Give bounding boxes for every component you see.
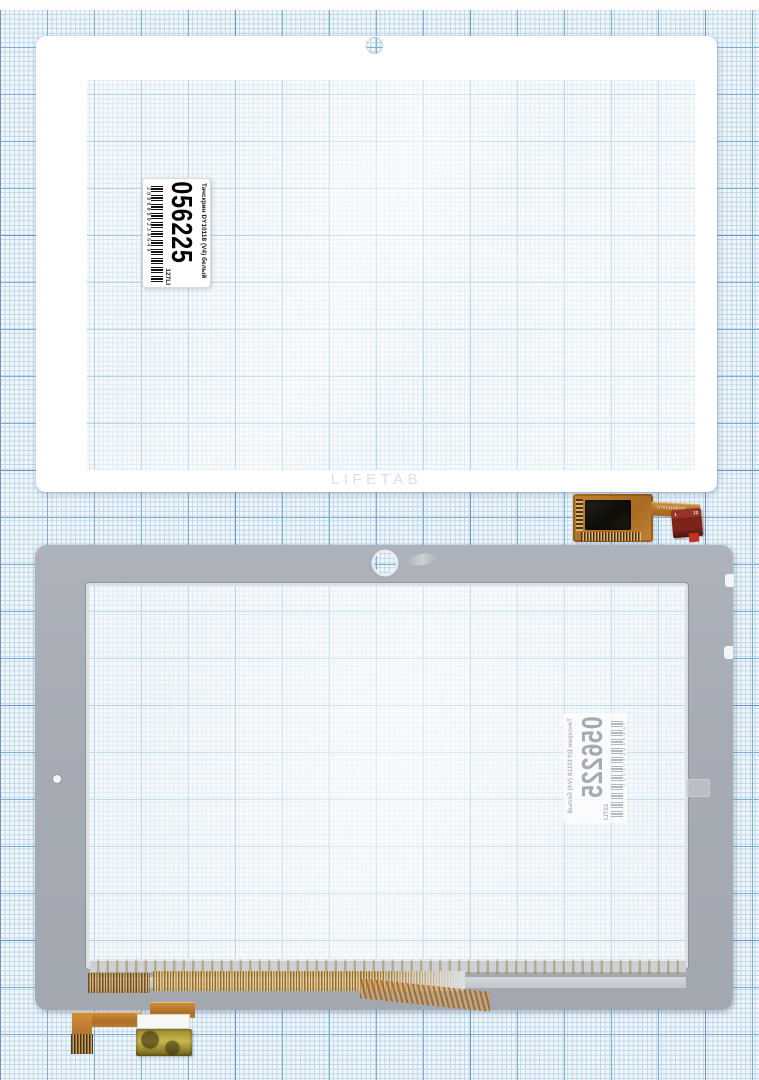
barcode-digits: 2000000234649 xyxy=(623,714,627,822)
label-big-number: 056225 xyxy=(577,714,610,800)
touch-controller-chip xyxy=(585,500,631,530)
label-number-row: 056225 127LI xyxy=(577,714,610,822)
barcode-bars xyxy=(151,186,163,282)
camera-hole-back xyxy=(374,552,396,574)
brand-logo-text: LIFETAB xyxy=(331,471,422,488)
barcode-digits: 2000000234649 xyxy=(144,179,151,287)
connector-red-tab xyxy=(689,533,700,543)
barcode-bars xyxy=(611,721,623,817)
edge-notch xyxy=(725,574,734,587)
flex-trace-bars xyxy=(576,499,583,531)
edge-notch xyxy=(724,646,733,659)
digitizer-front-view: LIFETAB Тачскрин DY10118 (V4) белый 0562… xyxy=(36,36,717,492)
surface-scuff-mark xyxy=(406,552,437,567)
barcode-label-card-mirrored: Тачскрин DY10118 (V4) белый 056225 127LI… xyxy=(563,713,627,823)
label-big-number: 056225 xyxy=(164,179,197,265)
mounting-hole xyxy=(53,775,61,783)
barcode-label-card: Тачскрин DY10118 (V4) белый 056225 127LI… xyxy=(142,178,211,288)
digitizer-back-view: Тачскрин DY10118 (V4) белый 056225 127LI… xyxy=(35,545,733,1010)
graph-paper-background: LIFETAB Тачскрин DY10118 (V4) белый 0562… xyxy=(0,0,759,1080)
label-suffix-code: 127LI xyxy=(164,268,171,285)
label-product-title: Тачскрин DY10118 (V4) белый xyxy=(197,179,210,287)
pin-label-last: 12 xyxy=(693,510,698,515)
pin-label-first: 1 xyxy=(674,512,677,517)
flex-contact-comb xyxy=(581,532,641,541)
back-flex-cable xyxy=(60,1000,205,1080)
flex-gold-connector xyxy=(136,1029,192,1056)
barcode-label-mirrored: Тачскрин DY10118 (V4) белый 056225 127LI… xyxy=(562,713,628,823)
label-product-title: Тачскрин DY10118 (V4) белый xyxy=(564,714,577,822)
label-suffix-code: 127LI xyxy=(603,803,610,820)
adhesive-patch xyxy=(687,779,710,797)
copper-trace-comb xyxy=(88,973,150,993)
flex-end-comb xyxy=(71,1034,93,1054)
camera-hole-front xyxy=(366,37,383,54)
paper-top-margin xyxy=(0,0,759,10)
front-flex-cable: DY010118(V4) 1 12 xyxy=(565,487,710,549)
label-number-row: 056225 127LI xyxy=(164,179,197,287)
barcode-label: Тачскрин DY10118 (V4) белый 056225 127LI… xyxy=(141,178,212,288)
flex-white-stiffener xyxy=(137,1014,190,1029)
